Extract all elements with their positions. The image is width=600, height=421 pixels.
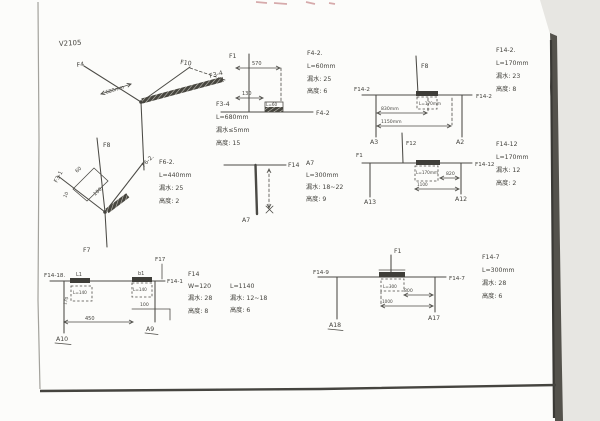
d1-label-f10: F10 [180,59,192,68]
d2-label-f8: F8 [103,142,111,149]
d8-dim-800: 800 [404,288,413,294]
d3-label-a7: A7 [242,217,250,224]
d4-box-label: L=170mm [416,170,438,175]
d7-label-b1: b1 [138,271,144,277]
paper-bottom-edge [40,385,556,391]
d7-dim-100: 100 [140,302,149,308]
d1-note-block: F3-4 L=680mm 漏水≤5mm 高度: 15 [216,101,250,147]
d4-label-a12: A12 [455,196,467,203]
d1-note-line: 漏水≤5mm [216,126,250,134]
d6-note-line: 高度: 8 [496,85,516,93]
d6-label-a2: A2 [456,139,464,146]
d4-label-f14-12: F14-12 [475,162,494,168]
d7-note-line: L=1140 [230,283,254,290]
sketch-canvas: V2105 680mm F4 F10 F3-4 F3-4 L=680mm 漏水≤… [0,0,600,421]
d3-note-line: 高度: 9 [306,195,326,203]
d4-label-f12: F12 [406,141,416,147]
d5-note-line: L=60mm [307,63,336,70]
d1-note-line: 高度: 15 [216,139,240,147]
d7-box1-label: L=140 [73,290,87,295]
d8-label-left: F14-9 [313,270,329,276]
d5-note-block: F4-2. L=60mm 漏水: 25 高度: 6 [307,50,336,95]
d7-note-line: 漏水: 28 [188,294,212,302]
d8-note-block: F14-7 L=300mm 漏水: 28 高度: 6 [482,254,515,300]
d2-label-f7: F7 [83,247,91,254]
d2-dim-60: 60 [74,166,83,175]
d6-note-block: F14-2. L=170mm 漏水: 23 高度: 8 [496,47,529,93]
diagram-f3-4-junction: 680mm F4 F10 F3-4 F3-4 L=680mm 漏水≤5mm 高度… [76,59,249,170]
scanner-background [540,0,600,421]
d6-label-f8: F8 [421,63,429,70]
diagram-f14-bottom-left: F17 F14-18. F14-1 L1 b1 L=140 L=140 170 … [44,257,267,345]
d8-pipe-segment [379,272,405,278]
d7-note-line: 高度: 8 [188,307,208,315]
d7-pipe-segment-2 [132,277,152,282]
d8-label-right: F14-7 [449,276,465,282]
d4-note-line: L=170mm [496,154,529,161]
d3-note-line: 漏水: 18~22 [306,183,343,191]
d3-label-f14: F14 [288,162,299,169]
d3-note-line: A7 [306,160,314,167]
d6-label-a3: A3 [370,139,378,146]
d8-note-line: 高度: 6 [482,292,502,300]
diagram-f4-2: F1 570 130 L=60 F4-2 F4-2. L=60mm 漏水: 25… [221,50,336,117]
d8-box-label: L=300 [383,284,397,289]
d8-label-a17: A17 [428,315,440,322]
d3-note-line: L=300mm [306,172,339,179]
d6-note-line: L=170mm [496,60,529,67]
d8-note-line: 漏水: 28 [482,279,506,287]
d7-label-f17: F17 [155,257,166,263]
d7-dim-450: 450 [85,316,95,322]
d2-note-line: 漏水: 25 [159,184,183,192]
d7-pipe-segment-1 [70,278,90,283]
d6-pipe-segment [416,91,438,96]
d1-note-line: L=680mm [216,114,249,121]
d1-hatched-segment [141,77,223,104]
d2-dim-100: 100 [92,187,103,198]
d2-dim-10: 10 [62,191,70,199]
d6-dim-830: 830mm [381,106,399,112]
paper-left-edge [38,2,40,389]
d6-dim-1150: 1150mm [381,119,402,125]
d2-note-line: 高度: 2 [159,197,179,205]
red-ink-marks [256,2,335,4]
d7-note-block-1: F14 W=120 漏水: 28 高度: 8 [188,271,212,315]
d7-label-left: F14-18. [44,273,65,279]
d5-label-f1: F1 [229,53,237,60]
d3-note-block: A7 L=300mm 漏水: 18~22 高度: 9 [306,160,343,203]
d5-note-line: 高度: 6 [307,87,327,95]
diagram-a7-drop: F14 A7 A7 L=300mm 漏水: 18~22 高度: 9 [224,160,343,224]
d8-note-line: F14-7 [482,254,500,261]
d2-note-block: F6-2. L=440mm 漏水: 25 高度: 2 [159,159,192,205]
diagram-f14-12: F12 F1 F14-12 L=170mm 820 1100 A13 A12 F… [356,133,529,206]
d7-dim-170: 170 [62,296,69,305]
scanned-sketch-page: V2105 680mm F4 F10 F3-4 F3-4 L=680mm 漏水≤… [0,0,600,421]
d7-note-line: 漏水: 12~18 [230,294,267,302]
d8-label-a18: A18 [329,322,341,329]
d2-note-line: F6-2. [159,159,175,166]
d5-note-line: 漏水: 25 [307,75,331,83]
d2-label-f3-1: F3-1 [53,170,64,184]
d1-label-f4: F4 [76,61,84,69]
d4-dim-820: 820 [446,171,455,177]
d6-box-label: L=170mm [419,101,441,106]
d7-note-block-2: L=1140 漏水: 12~18 高度: 6 [230,283,267,314]
d7-box2-label: L=140 [133,287,147,292]
d7-label-l1: L1 [76,272,82,278]
d7-label-a10: A10 [56,336,68,343]
d6-linework [362,56,472,137]
diagram-f14-7: F1 F14-9 F14-7 L=300 800 1000 A18 A17 F1… [313,248,515,331]
d4-label-a13: A13 [364,199,376,206]
d4-note-line: 漏水: 12 [496,166,520,174]
d7-note-line: F14 [188,271,199,278]
d5-box-label: L=60 [266,102,278,107]
d7-note-line: 高度: 6 [230,306,250,314]
d1-linework [84,66,225,170]
d6-note-line: 漏水: 23 [496,72,520,80]
d4-note-block: F14-12 L=170mm 漏水: 12 高度: 2 [496,141,529,187]
diagram-f6-2-junction: F8 F3-1 F6-2. 60 100 10 F7 F6-2. L=440mm… [53,138,191,254]
d3-linework [224,165,286,214]
d8-note-line: L=300mm [482,267,515,274]
d4-pipe-segment [416,160,440,165]
d8-linework [318,255,446,331]
d4-dim-1100: 1100 [417,182,428,187]
d7-label-right: F14-1 [167,279,183,285]
d4-note-line: 高度: 2 [496,179,516,187]
diagram-f14-2-top: F8 F14-2 F14-2 L=170mm 830mm 1150mm A3 A… [354,47,529,146]
d4-label-f1: F1 [356,153,363,159]
d5-dim-130: 130 [242,91,252,97]
d7-note-line: W=120 [188,283,211,290]
d5-hatched-segment [265,107,283,112]
d7-label-a9: A9 [146,326,154,333]
d1-note-line: F3-4 [216,101,230,108]
d8-dim-1000: 1000 [382,299,393,304]
d1-dim-label: 680mm [105,84,125,95]
d6-label-right: F14-2 [476,94,492,100]
d6-label-left: F14-2 [354,87,370,93]
d5-dim-570: 570 [252,61,262,67]
d6-note-line: F14-2. [496,47,516,54]
page-code-label: V2105 [59,39,82,48]
d2-note-line: L=440mm [159,172,192,179]
d5-note-line: F4-2. [307,50,323,57]
d8-label-f1: F1 [394,248,402,255]
d5-label-f4-2: F4-2 [316,110,330,117]
d4-note-line: F14-12 [496,141,518,148]
